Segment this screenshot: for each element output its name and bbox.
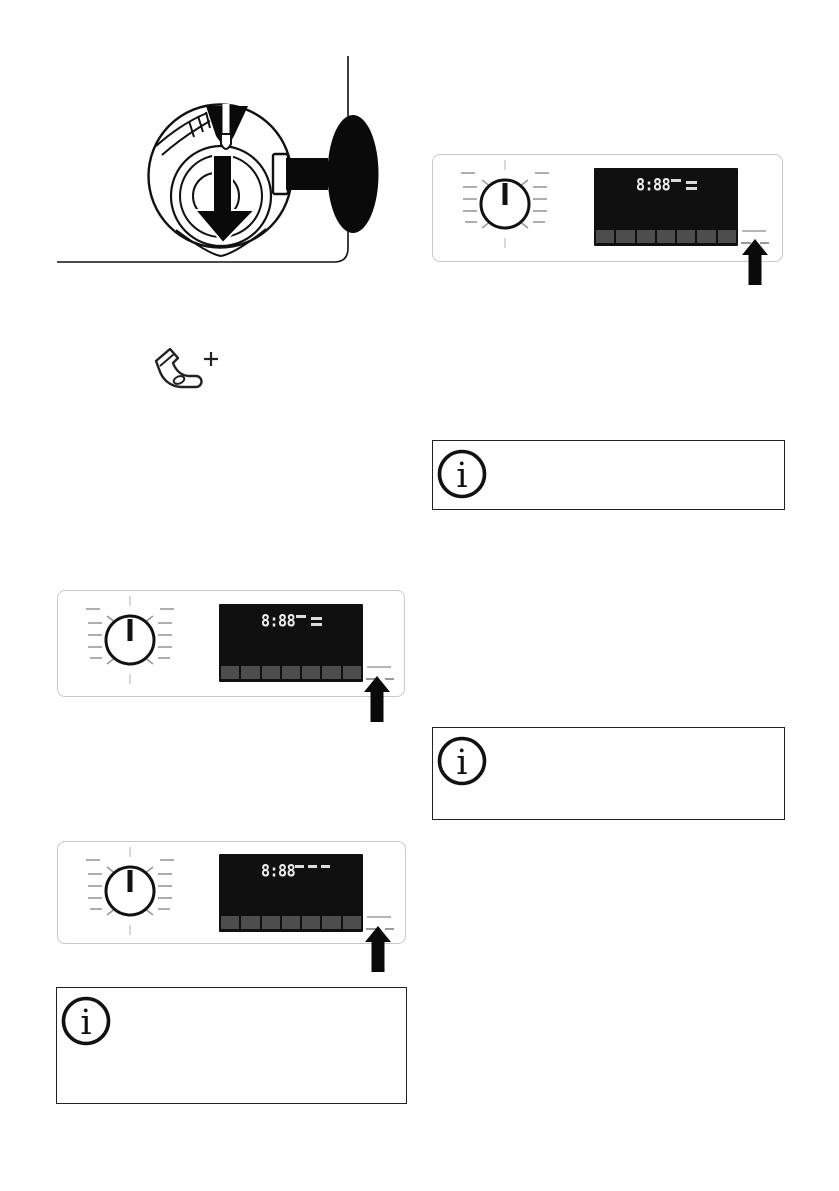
program-knob xyxy=(460,156,550,252)
button-indicator-line xyxy=(367,916,391,918)
display-dash-segment xyxy=(311,623,322,626)
manual-page: 8:88 xyxy=(0,0,839,1191)
panel-button xyxy=(718,230,736,243)
panel-button xyxy=(302,916,320,929)
display-button-row xyxy=(596,230,736,243)
panel-button xyxy=(677,230,695,243)
info-note-box: i xyxy=(432,440,785,510)
knob-collar xyxy=(273,154,288,194)
nozzle-tip xyxy=(221,134,231,149)
display-dash-segment xyxy=(686,181,697,184)
display-button-row xyxy=(221,666,361,679)
display-screen: 8:88 xyxy=(594,168,738,246)
display-dash-segment xyxy=(296,615,306,618)
panel-button xyxy=(241,666,259,679)
sock-plus-icon xyxy=(152,343,230,395)
panel-button xyxy=(596,230,614,243)
display-time: 8:88 xyxy=(261,611,295,631)
display-time: 8:88 xyxy=(636,175,670,195)
svg-text:i: i xyxy=(456,743,467,783)
up-arrow-callout xyxy=(365,926,391,972)
panel-button xyxy=(343,916,361,929)
info-icon: i xyxy=(60,995,112,1047)
panel-button xyxy=(282,666,300,679)
panel-button xyxy=(616,230,634,243)
display-dash-segment xyxy=(321,865,330,868)
control-panel-diagram: 8:88 xyxy=(57,590,405,697)
info-note-box: i xyxy=(432,727,785,820)
panel-button xyxy=(241,916,259,929)
info-icon: i xyxy=(436,735,488,787)
display-button-row xyxy=(221,916,361,929)
info-icon: i xyxy=(436,448,488,500)
plus-sign xyxy=(204,352,218,366)
panel-button xyxy=(637,230,655,243)
control-panel-diagram: 8:88 xyxy=(432,154,783,262)
display-dash-segment xyxy=(295,865,304,868)
program-knob xyxy=(85,843,175,939)
display-dash-segment xyxy=(686,187,697,190)
panel-button xyxy=(322,916,340,929)
panel-button xyxy=(221,666,239,679)
button-indicator-line xyxy=(367,666,391,668)
panel-button xyxy=(221,916,239,929)
program-knob xyxy=(85,592,175,688)
display-dash-segment xyxy=(311,617,322,620)
panel-button xyxy=(343,666,361,679)
panel-button xyxy=(322,666,340,679)
panel-button xyxy=(302,666,320,679)
svg-text:i: i xyxy=(80,1003,91,1043)
up-arrow-callout xyxy=(742,239,768,285)
display-screen: 8:88 xyxy=(219,854,363,932)
knob-shaft xyxy=(286,158,328,190)
panel-button xyxy=(262,916,280,929)
panel-button xyxy=(282,916,300,929)
control-panel-diagram: 8:88 xyxy=(57,841,406,944)
svg-text:i: i xyxy=(456,456,467,496)
drain-pump-pushdown-figure xyxy=(40,40,400,285)
black-oval-knob xyxy=(328,115,379,233)
up-arrow-callout xyxy=(364,676,390,722)
panel-button xyxy=(262,666,280,679)
panel-button xyxy=(697,230,715,243)
panel-button xyxy=(657,230,675,243)
info-note-box: i xyxy=(56,987,407,1104)
display-dash-segment xyxy=(671,179,681,182)
display-screen: 8:88 xyxy=(219,604,363,682)
button-indicator-line xyxy=(742,230,766,232)
display-time: 8:88 xyxy=(261,861,295,881)
display-dash-segment xyxy=(308,865,317,868)
